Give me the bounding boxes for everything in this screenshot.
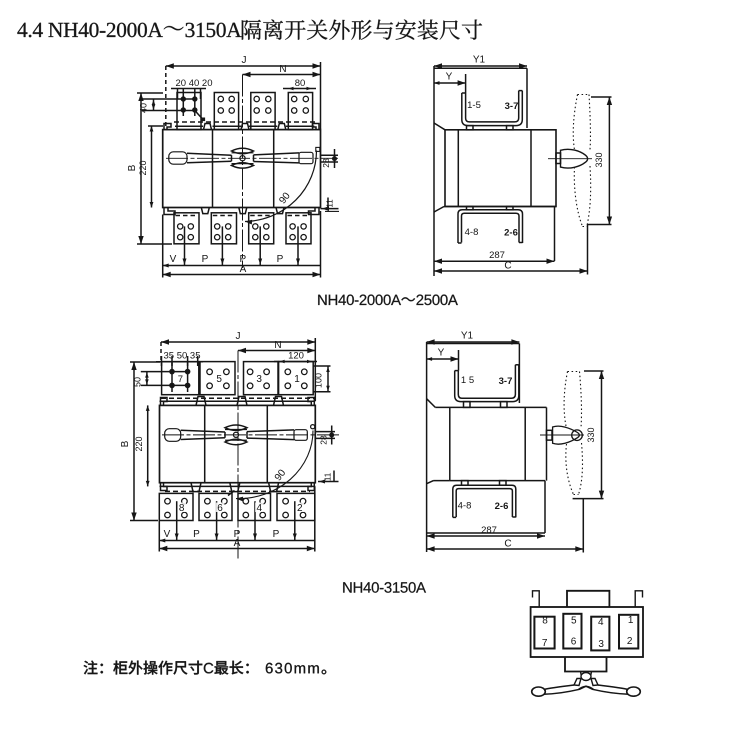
svg-text:P: P <box>202 254 209 265</box>
svg-text:1-5: 1-5 <box>467 100 481 111</box>
svg-text:Y: Y <box>446 72 453 83</box>
svg-text:2: 2 <box>627 636 633 647</box>
svg-text:2: 2 <box>297 503 303 514</box>
svg-text:11: 11 <box>324 472 333 481</box>
svg-text:1: 1 <box>294 374 300 385</box>
svg-text:120: 120 <box>288 351 304 362</box>
svg-text:P: P <box>277 254 284 265</box>
svg-text:Y1: Y1 <box>473 55 486 66</box>
svg-text:7: 7 <box>542 638 548 649</box>
svg-text:B: B <box>127 164 138 171</box>
svg-text:V: V <box>164 529 171 540</box>
svg-text:C: C <box>504 539 511 550</box>
svg-text:8: 8 <box>179 503 185 514</box>
svg-text:5: 5 <box>216 374 222 385</box>
svg-text:P: P <box>273 529 280 540</box>
svg-text:5: 5 <box>571 616 577 627</box>
svg-text:7: 7 <box>178 374 183 385</box>
svg-text:1: 1 <box>628 615 634 626</box>
svg-text:C: C <box>504 261 511 272</box>
svg-text:A: A <box>240 264 247 275</box>
svg-text:B: B <box>120 440 131 447</box>
svg-text:80: 80 <box>295 78 306 89</box>
svg-text:330: 330 <box>594 152 604 167</box>
svg-text:4-8: 4-8 <box>465 227 479 238</box>
svg-text:11: 11 <box>326 199 335 208</box>
svg-text:J: J <box>236 331 241 342</box>
svg-text:90: 90 <box>273 467 289 483</box>
svg-text:20 40 20: 20 40 20 <box>176 78 213 89</box>
svg-text:6: 6 <box>571 637 577 648</box>
svg-text:4: 4 <box>598 617 604 628</box>
svg-text:40: 40 <box>139 103 149 113</box>
svg-text:28: 28 <box>318 435 328 445</box>
svg-text:8: 8 <box>542 616 548 627</box>
svg-text:3: 3 <box>598 639 604 650</box>
svg-text:4-8: 4-8 <box>458 501 472 512</box>
svg-text:6: 6 <box>217 503 223 514</box>
svg-text:N: N <box>279 64 286 75</box>
svg-text:3: 3 <box>256 374 262 385</box>
svg-text:220: 220 <box>134 436 144 451</box>
svg-text:P: P <box>193 529 200 540</box>
svg-text:330: 330 <box>586 427 596 442</box>
svg-text:3-7: 3-7 <box>505 101 519 112</box>
svg-text:35 50 35: 35 50 35 <box>164 351 201 362</box>
svg-text:90: 90 <box>277 190 293 206</box>
svg-text:2-6: 2-6 <box>504 228 518 239</box>
svg-text:1 5: 1 5 <box>461 375 474 386</box>
svg-text:287: 287 <box>481 525 497 536</box>
svg-text:100: 100 <box>314 373 324 388</box>
svg-text:N: N <box>274 340 281 351</box>
svg-text:220: 220 <box>138 160 148 175</box>
svg-text:4: 4 <box>257 503 263 514</box>
svg-text:Y: Y <box>438 348 445 359</box>
svg-text:Y1: Y1 <box>461 331 474 342</box>
svg-text:2-6: 2-6 <box>495 501 509 512</box>
svg-text:287: 287 <box>489 250 505 261</box>
svg-text:28: 28 <box>321 158 331 168</box>
svg-text:J: J <box>242 55 247 66</box>
svg-text:3-7: 3-7 <box>499 376 513 387</box>
svg-text:V: V <box>170 254 177 265</box>
svg-text:A: A <box>234 538 241 549</box>
